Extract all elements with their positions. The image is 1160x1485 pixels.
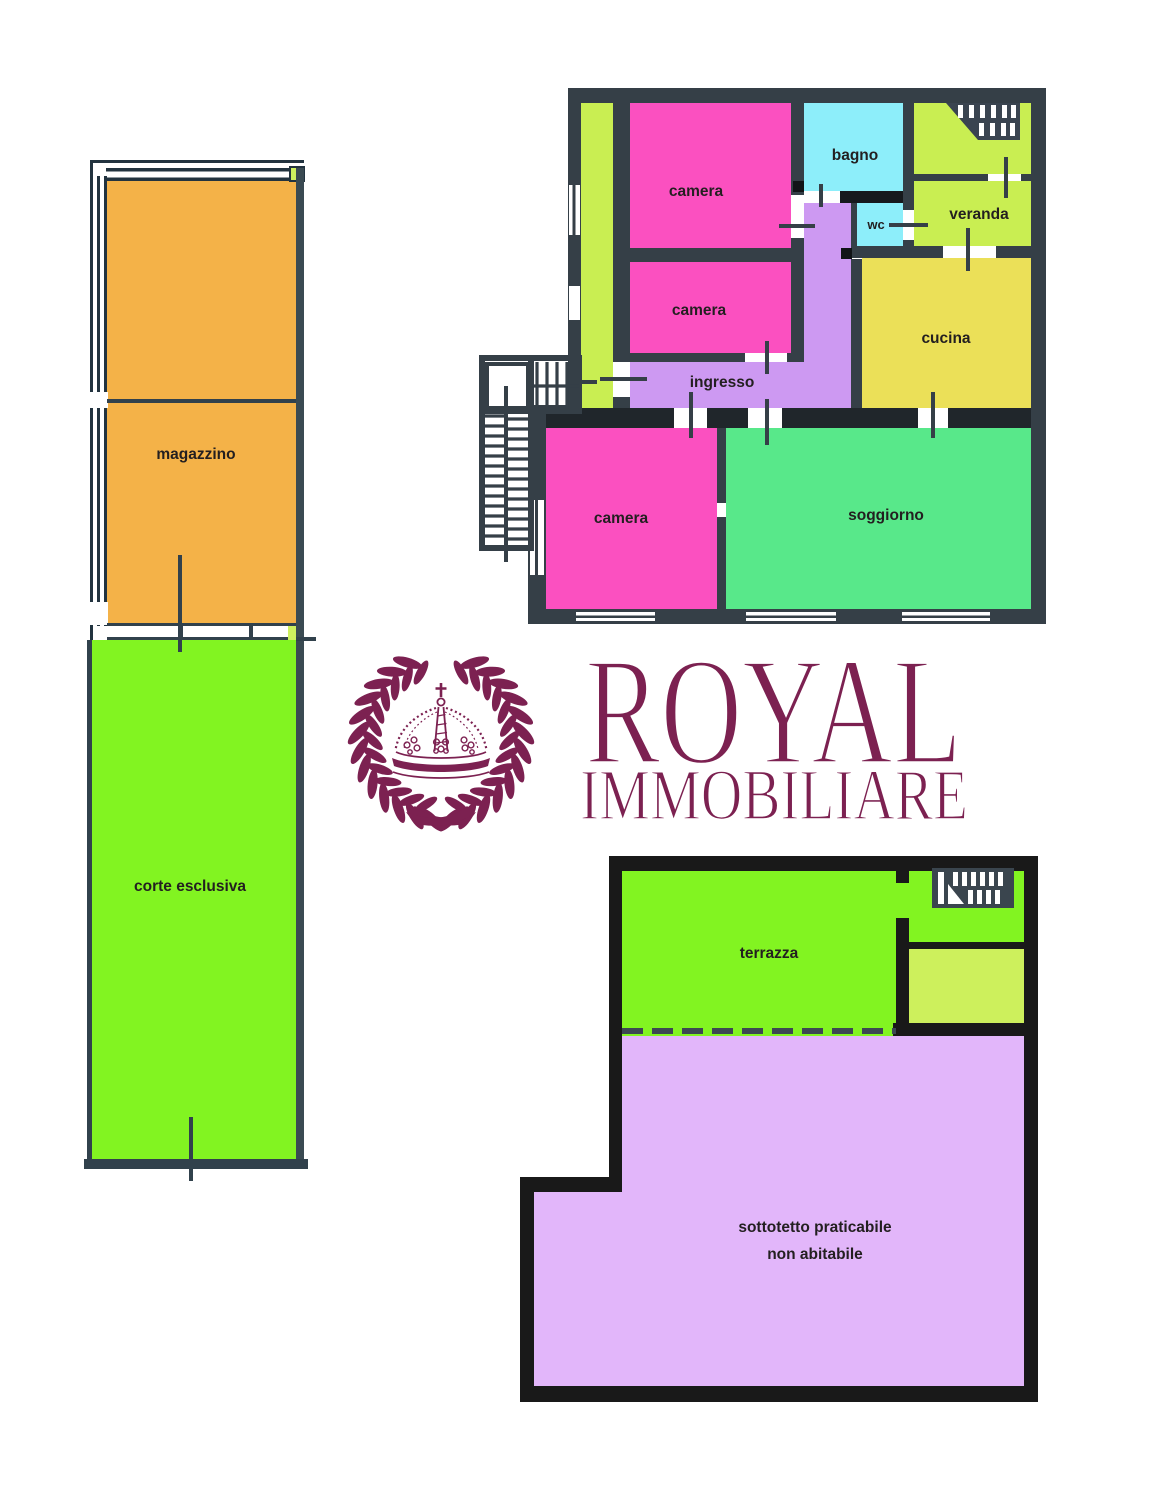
- svg-text:sottotetto praticabile: sottotetto praticabile: [738, 1219, 892, 1236]
- svg-text:IMMOBILIARE: IMMOBILIARE: [580, 755, 968, 835]
- svg-text:camera: camera: [594, 510, 649, 527]
- svg-text:cucina: cucina: [921, 330, 970, 347]
- svg-text:corte esclusiva: corte esclusiva: [134, 878, 246, 895]
- svg-text:wc: wc: [866, 217, 884, 232]
- svg-text:magazzino: magazzino: [156, 446, 235, 463]
- svg-text:soggiorno: soggiorno: [848, 507, 924, 524]
- svg-text:terrazza: terrazza: [740, 945, 799, 962]
- svg-text:ingresso: ingresso: [690, 374, 755, 391]
- svg-text:camera: camera: [672, 302, 727, 319]
- svg-text:camera: camera: [669, 183, 724, 200]
- svg-text:bagno: bagno: [832, 147, 879, 164]
- svg-text:non abitabile: non abitabile: [767, 1246, 863, 1263]
- svg-text:veranda: veranda: [949, 206, 1009, 223]
